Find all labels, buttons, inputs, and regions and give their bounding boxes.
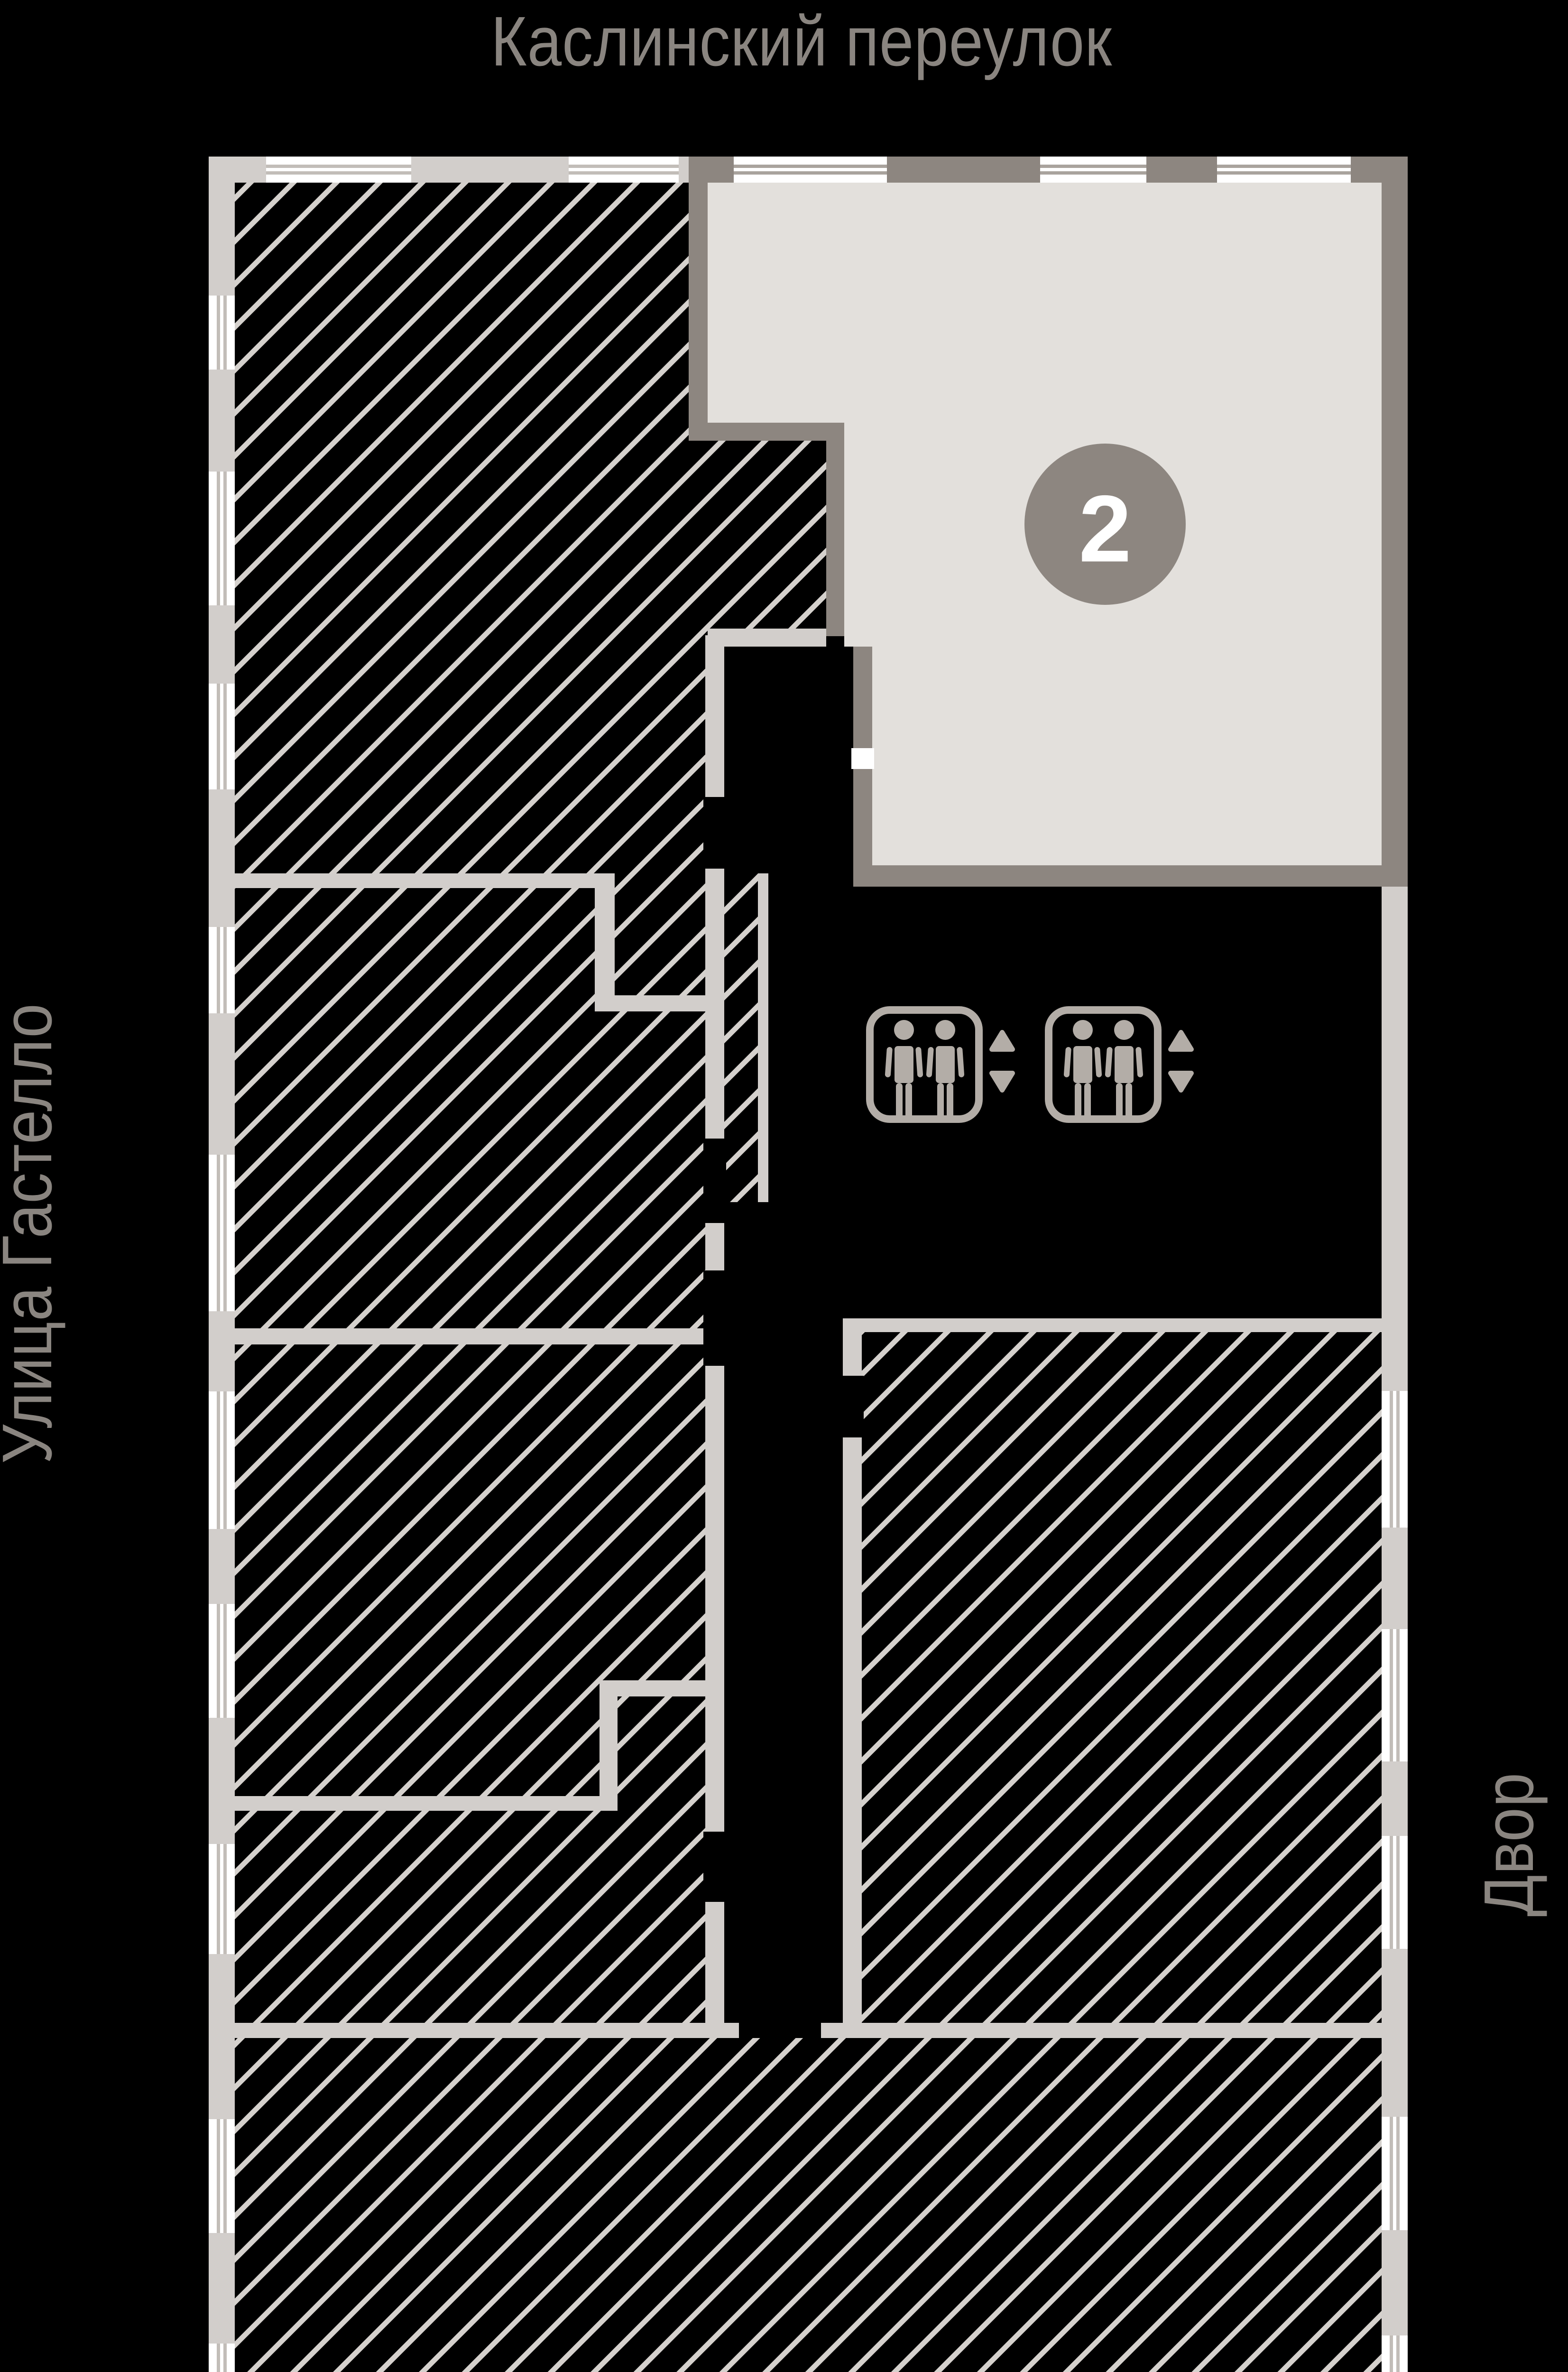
badge-number: 2 [1079, 476, 1131, 582]
elevator-hall [724, 887, 1382, 1318]
corridor-upper [708, 636, 853, 887]
street-label-left: Улица Гастелло [0, 1003, 66, 1464]
unit-2-door [851, 748, 874, 769]
corridor-door-bottom [739, 2023, 821, 2038]
unit-2-windows [734, 157, 1351, 183]
corridor-lower [724, 1318, 843, 2023]
shaft-hatch-strip [724, 873, 758, 1202]
unit-2-badge[interactable]: 2 [1024, 444, 1186, 605]
street-label-right: Двор [1469, 1772, 1548, 1917]
floor-plan: 2 [0, 0, 1568, 2372]
street-label-top: Каслинский переулок [491, 2, 1112, 81]
